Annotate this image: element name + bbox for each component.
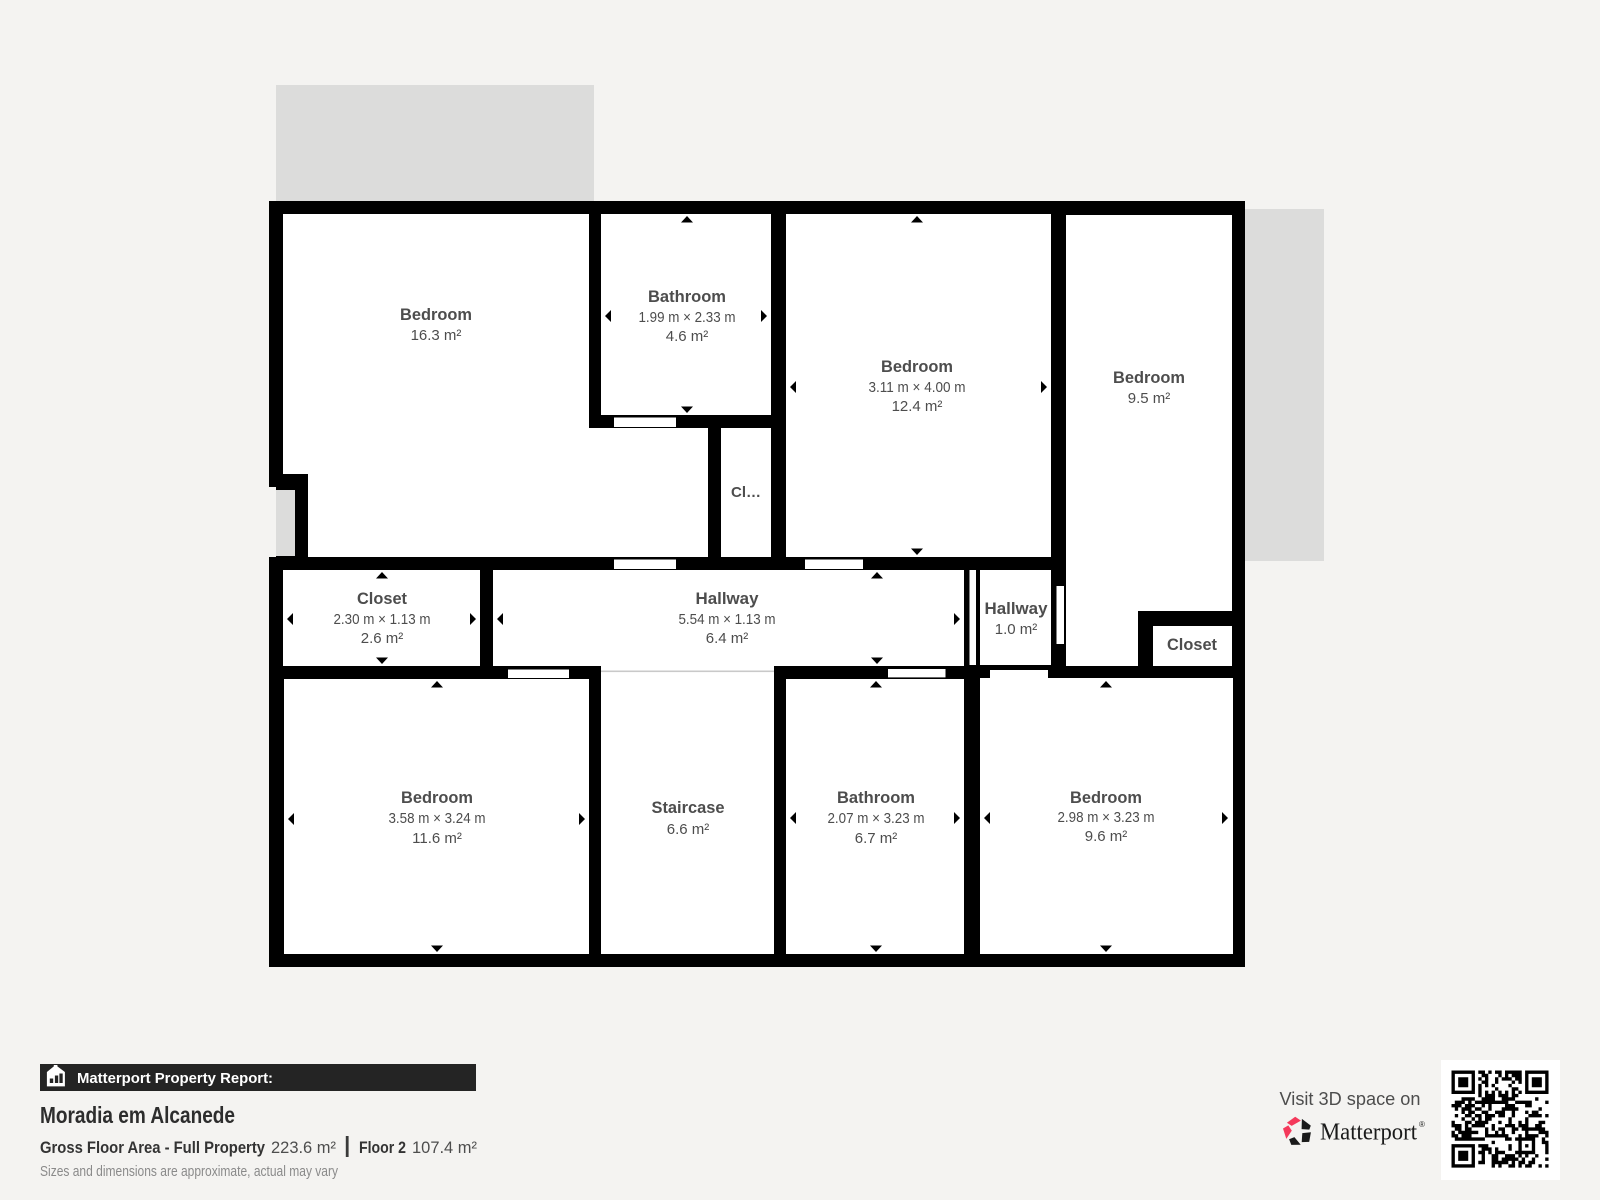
svg-text:9.6 m²: 9.6 m² [1085,828,1128,845]
svg-text:11.6 m²: 11.6 m² [412,830,462,847]
svg-text:Moradia em Alcanede: Moradia em Alcanede [40,1102,235,1128]
svg-text:Bedroom: Bedroom [400,305,472,324]
svg-text:Gross Floor Area - Full Proper: Gross Floor Area - Full Property [40,1138,265,1157]
svg-text:2.98 m × 3.23 m: 2.98 m × 3.23 m [1058,809,1155,826]
svg-text:Bedroom: Bedroom [1070,788,1142,807]
svg-text:2.6 m²: 2.6 m² [361,630,404,647]
svg-text:2.30 m × 1.13 m: 2.30 m × 1.13 m [334,611,431,628]
svg-text:Bathroom: Bathroom [648,287,726,306]
svg-text:Visit 3D space on: Visit 3D space on [1280,1088,1421,1109]
svg-text:16.3 m²: 16.3 m² [411,327,462,344]
svg-text:Cl…: Cl… [731,484,761,501]
svg-text:Closet: Closet [1167,635,1217,654]
svg-text:6.7 m²: 6.7 m² [855,830,898,847]
svg-text:2.07 m × 3.23 m: 2.07 m × 3.23 m [828,810,925,827]
svg-text:Floor 2: Floor 2 [359,1138,406,1157]
svg-text:1.99 m × 2.33 m: 1.99 m × 2.33 m [639,309,736,326]
svg-text:4.6 m²: 4.6 m² [666,328,709,345]
svg-text:107.4 m²: 107.4 m² [412,1138,477,1157]
svg-text:3.58 m × 3.24 m: 3.58 m × 3.24 m [389,810,486,827]
svg-text:Bedroom: Bedroom [881,357,953,376]
svg-text:Bedroom: Bedroom [401,788,473,807]
svg-text:Closet: Closet [357,589,407,608]
svg-text:Matterport Property Report:: Matterport Property Report: [77,1070,273,1087]
svg-text:3.11 m × 4.00 m: 3.11 m × 4.00 m [869,379,966,396]
svg-text:Hallway: Hallway [985,599,1049,618]
svg-text:5.54 m × 1.13 m: 5.54 m × 1.13 m [679,611,776,628]
svg-text:6.4 m²: 6.4 m² [706,630,749,647]
svg-text:Matterport: Matterport [1320,1119,1417,1146]
svg-text:®: ® [1419,1120,1425,1129]
svg-text:9.5 m²: 9.5 m² [1128,390,1171,407]
svg-text:223.6 m²: 223.6 m² [271,1138,336,1157]
svg-text:Sizes and dimensions are appro: Sizes and dimensions are approximate, ac… [40,1163,338,1180]
svg-text:Hallway: Hallway [696,589,760,608]
svg-text:12.4 m²: 12.4 m² [892,398,943,415]
svg-text:Bedroom: Bedroom [1113,368,1185,387]
svg-text:6.6 m²: 6.6 m² [667,821,710,838]
svg-text:Staircase: Staircase [652,798,725,817]
svg-text:Bathroom: Bathroom [837,788,915,807]
svg-text:1.0 m²: 1.0 m² [995,621,1038,638]
